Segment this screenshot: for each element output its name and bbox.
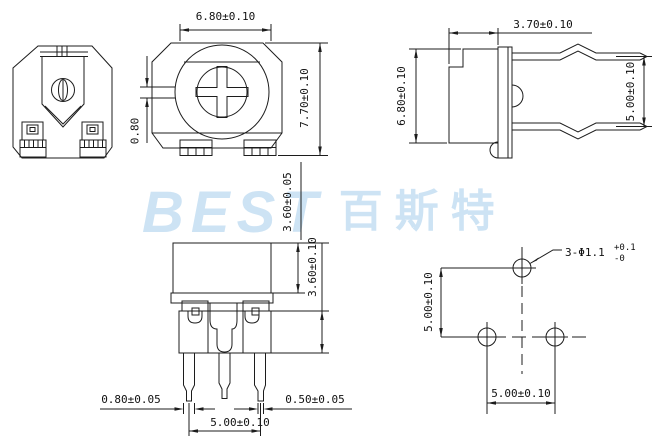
front-view [140, 43, 282, 156]
side-view [449, 44, 647, 158]
dim-bottom-standoff: 3.60±0.05 [281, 172, 294, 232]
dim-lead-width: 0.80±0.05 [101, 393, 161, 406]
dim-side-pin-pitch: 5.00±0.10 [624, 62, 637, 122]
front-view-dimensions: 6.80±0.10 7.70±0.10 0.80 [129, 10, 329, 156]
hole-diameter-callout: 3-Φ1.1 [565, 246, 605, 259]
dim-side-depth: 3.70±0.10 [513, 18, 573, 31]
dim-bottom-body-height: 3.60±0.10 [306, 237, 319, 297]
dim-front-slot-width: 0.80 [129, 118, 142, 145]
pictorial-view [13, 46, 112, 158]
side-view-dimensions: 3.70±0.10 6.80±0.10 5.00±0.10 [395, 18, 652, 143]
hole-tolerance-lower: -0 [614, 254, 625, 264]
dim-front-height: 7.70±0.10 [298, 68, 311, 128]
drawing-sheet: BEST百斯特 [0, 0, 655, 441]
hole-pattern-view: 5.00±0.10 5.00±0.10 3-Φ1.1 +0.1 -0 [422, 243, 636, 414]
dim-front-width: 6.80±0.10 [196, 10, 256, 23]
lead-right [255, 353, 266, 401]
lead-middle [219, 353, 230, 399]
bottom-view-dimensions: 3.60±0.05 3.60±0.10 0.80±0.05 0.50±0.05 [100, 162, 352, 436]
dim-side-height: 6.80±0.10 [395, 66, 408, 126]
rotor-circle [175, 45, 269, 139]
bottom-view [171, 243, 273, 401]
dim-hole-horizontal-pitch: 5.00±0.10 [491, 387, 551, 400]
technical-drawing: 6.80±0.10 7.70±0.10 0.80 [0, 0, 655, 441]
lead-left [184, 353, 195, 401]
dim-hole-vertical-pitch: 5.00±0.10 [422, 272, 435, 332]
hole-tolerance-upper: +0.1 [614, 243, 636, 253]
dim-lead-tip-width: 0.50±0.05 [285, 393, 345, 406]
